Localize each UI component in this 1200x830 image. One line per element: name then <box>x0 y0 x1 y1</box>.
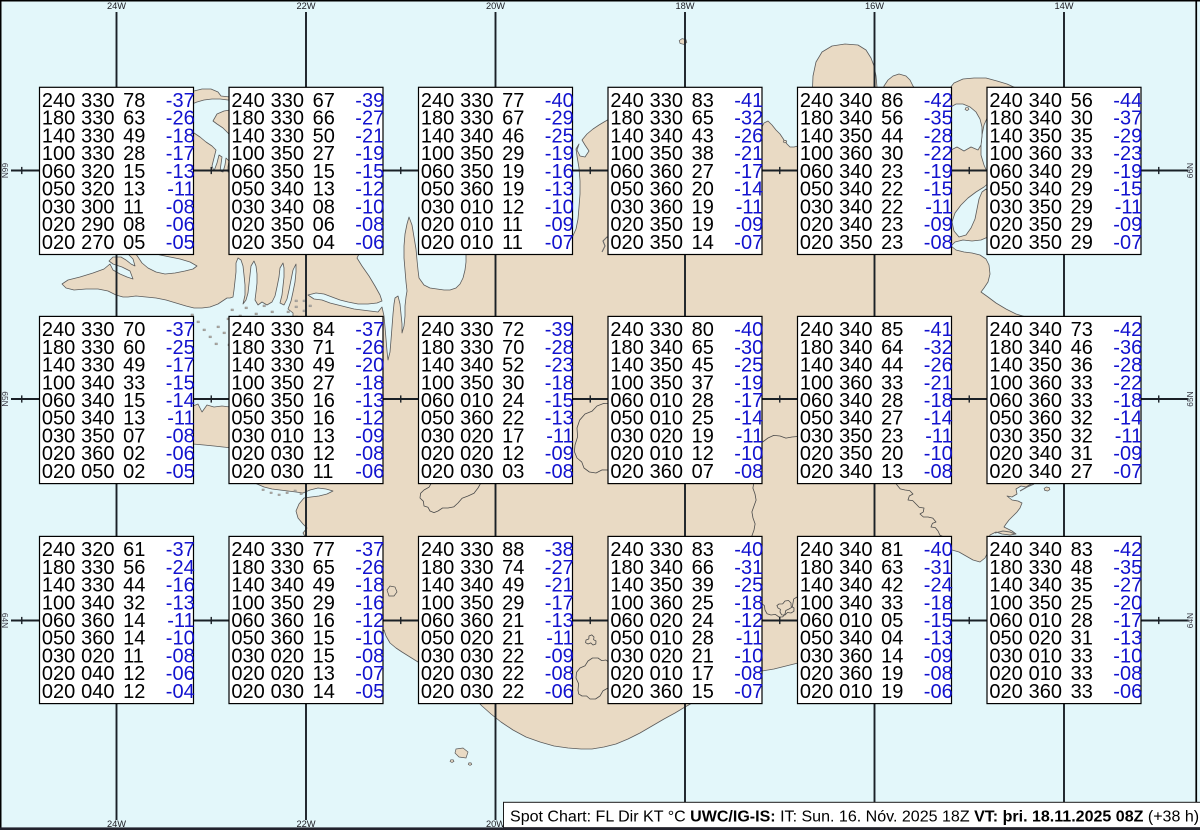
svg-text:020: 020 <box>42 681 75 703</box>
svg-text:-07: -07 <box>734 232 763 254</box>
svg-text:05: 05 <box>123 232 145 254</box>
svg-text:-08: -08 <box>734 461 763 483</box>
svg-text:-05: -05 <box>166 232 195 254</box>
svg-text:64N: 64N <box>0 613 10 628</box>
svg-text:03: 03 <box>502 461 524 483</box>
svg-text:340: 340 <box>1029 461 1062 483</box>
svg-text:27: 27 <box>1071 461 1093 483</box>
svg-text:11: 11 <box>502 232 523 254</box>
svg-text:65N: 65N <box>1185 391 1195 406</box>
svg-text:13: 13 <box>881 461 903 483</box>
svg-text:020: 020 <box>989 461 1022 483</box>
svg-text:020: 020 <box>231 681 264 703</box>
svg-text:14: 14 <box>313 681 335 703</box>
svg-text:040: 040 <box>81 681 114 703</box>
svg-text:030: 030 <box>271 681 304 703</box>
svg-text:270: 270 <box>81 232 114 254</box>
svg-text:030: 030 <box>460 461 493 483</box>
svg-text:-07: -07 <box>734 681 763 703</box>
svg-text:-06: -06 <box>355 461 384 483</box>
svg-text:-07: -07 <box>545 232 574 254</box>
svg-text:-07: -07 <box>1113 232 1142 254</box>
svg-text:020: 020 <box>989 232 1022 254</box>
svg-text:15: 15 <box>692 681 714 703</box>
svg-text:020: 020 <box>231 461 264 483</box>
svg-text:350: 350 <box>839 232 872 254</box>
svg-text:360: 360 <box>1029 681 1062 703</box>
svg-text:66N: 66N <box>0 163 10 178</box>
svg-text:360: 360 <box>650 461 683 483</box>
svg-text:-06: -06 <box>1113 681 1142 703</box>
svg-text:-08: -08 <box>924 232 953 254</box>
svg-text:22W: 22W <box>296 1 315 11</box>
svg-text:22: 22 <box>502 681 524 703</box>
svg-text:020: 020 <box>42 461 75 483</box>
svg-text:66N: 66N <box>1185 163 1195 178</box>
svg-text:020: 020 <box>42 232 75 254</box>
svg-text:350: 350 <box>650 232 683 254</box>
svg-text:020: 020 <box>231 232 264 254</box>
svg-text:24W: 24W <box>107 1 126 11</box>
svg-text:16W: 16W <box>865 1 884 11</box>
svg-text:-05: -05 <box>166 461 195 483</box>
svg-text:23: 23 <box>881 232 903 254</box>
svg-text:020: 020 <box>610 681 643 703</box>
svg-text:030: 030 <box>460 681 493 703</box>
svg-text:020: 020 <box>989 681 1022 703</box>
svg-text:-06: -06 <box>355 232 384 254</box>
svg-text:19: 19 <box>881 681 903 703</box>
svg-text:030: 030 <box>271 461 304 483</box>
svg-text:020: 020 <box>610 461 643 483</box>
svg-text:-05: -05 <box>355 681 384 703</box>
svg-text:050: 050 <box>81 461 114 483</box>
svg-text:360: 360 <box>650 681 683 703</box>
svg-text:020: 020 <box>800 681 833 703</box>
svg-text:350: 350 <box>271 232 304 254</box>
svg-text:010: 010 <box>839 681 872 703</box>
svg-text:340: 340 <box>839 461 872 483</box>
svg-text:-08: -08 <box>924 461 953 483</box>
svg-text:65N: 65N <box>0 391 10 406</box>
svg-text:07: 07 <box>692 461 714 483</box>
svg-text:14W: 14W <box>1054 1 1073 11</box>
svg-text:Spot Chart: FL Dir KT °C UWC/I: Spot Chart: FL Dir KT °C UWC/IG-IS: IT: … <box>510 808 1199 826</box>
svg-text:12: 12 <box>123 681 145 703</box>
svg-text:020: 020 <box>800 461 833 483</box>
svg-text:-06: -06 <box>924 681 953 703</box>
svg-text:02: 02 <box>123 461 145 483</box>
svg-text:11: 11 <box>313 461 334 483</box>
svg-text:18W: 18W <box>675 1 694 11</box>
svg-text:20W: 20W <box>486 1 505 11</box>
svg-text:020: 020 <box>421 681 454 703</box>
svg-text:010: 010 <box>460 232 493 254</box>
svg-text:-04: -04 <box>166 681 195 703</box>
svg-text:64N: 64N <box>1185 613 1195 628</box>
svg-text:04: 04 <box>313 232 335 254</box>
svg-text:-07: -07 <box>1113 461 1142 483</box>
svg-text:33: 33 <box>1071 681 1093 703</box>
svg-text:14: 14 <box>692 232 714 254</box>
svg-text:020: 020 <box>800 232 833 254</box>
svg-text:020: 020 <box>421 232 454 254</box>
svg-text:29: 29 <box>1071 232 1093 254</box>
svg-text:020: 020 <box>421 461 454 483</box>
svg-text:-08: -08 <box>545 461 574 483</box>
svg-text:020: 020 <box>610 232 643 254</box>
svg-text:-06: -06 <box>545 681 574 703</box>
svg-text:350: 350 <box>1029 232 1062 254</box>
